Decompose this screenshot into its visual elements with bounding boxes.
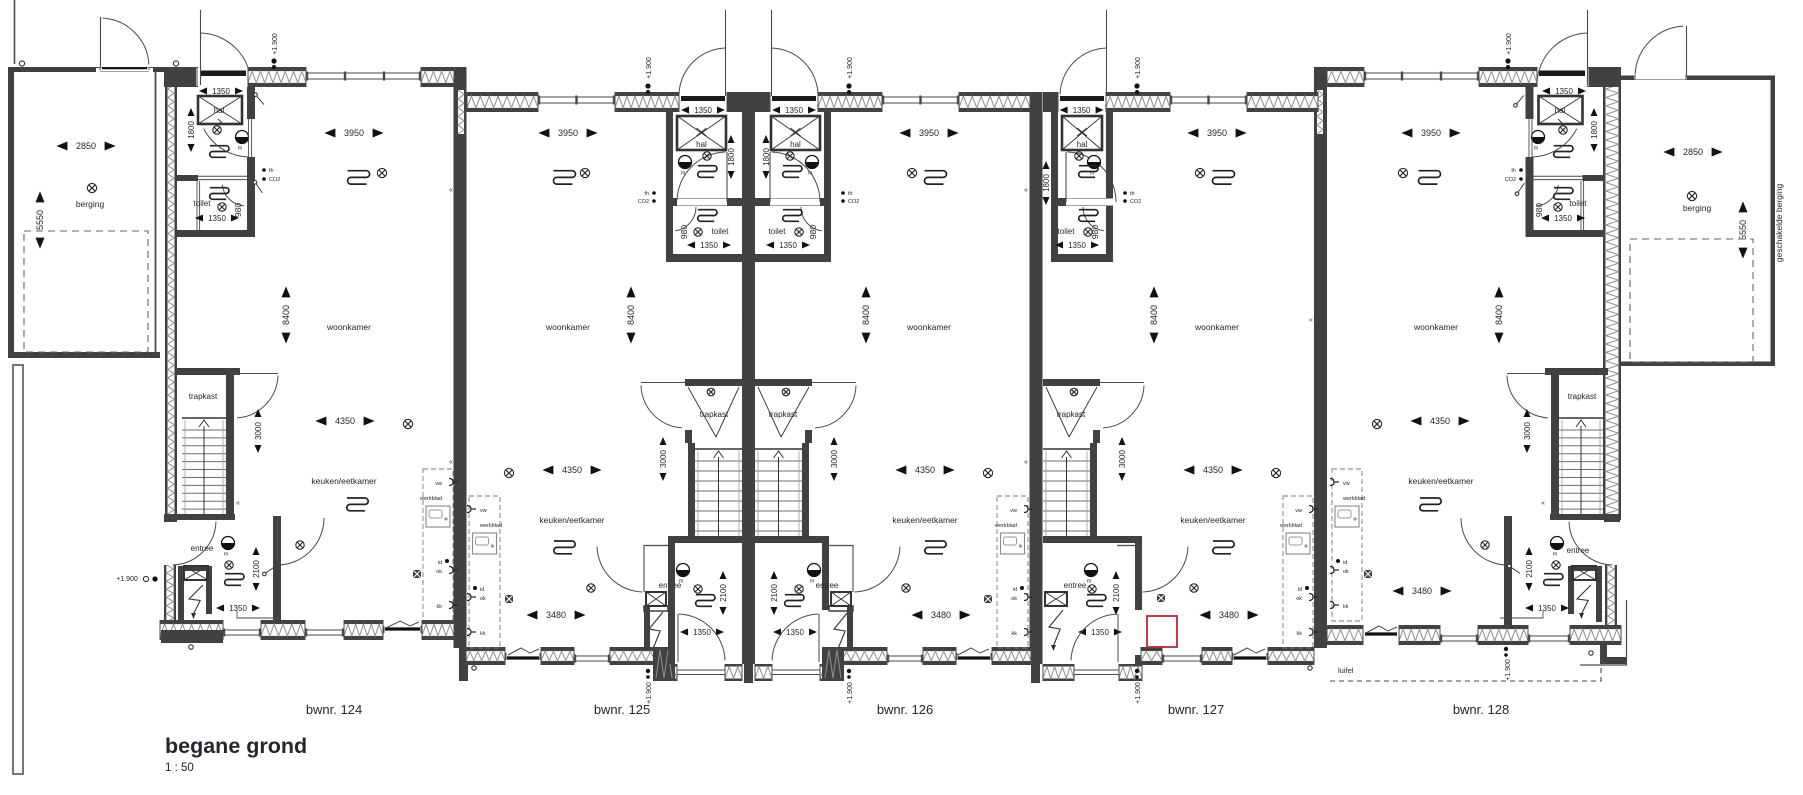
svg-text:toilet: toilet — [769, 227, 787, 236]
svg-text:+1.900: +1.900 — [272, 33, 279, 55]
svg-text:werkblad: werkblad — [419, 496, 442, 502]
svg-text:3000: 3000 — [1523, 422, 1532, 440]
svg-text:4350: 4350 — [915, 465, 935, 475]
svg-text:8400: 8400 — [626, 305, 636, 325]
svg-text:woonkamer: woonkamer — [1413, 322, 1458, 332]
svg-text:«: « — [236, 500, 240, 507]
svg-text:begane grond: begane grond — [165, 734, 307, 758]
svg-text:woonkamer: woonkamer — [1194, 322, 1239, 332]
svg-text:2850: 2850 — [1683, 147, 1703, 157]
svg-text:+1.900: +1.900 — [847, 682, 854, 704]
svg-text:+1.900: +1.900 — [1135, 57, 1142, 79]
svg-text:trapkast: trapkast — [700, 410, 729, 419]
svg-text:m: m — [808, 171, 813, 177]
svg-text:4350: 4350 — [335, 416, 355, 426]
svg-text:«: « — [182, 367, 186, 374]
svg-text:980: 980 — [679, 225, 689, 239]
svg-text:980: 980 — [808, 225, 818, 239]
svg-text:th: th — [1511, 168, 1516, 174]
svg-text:ok: ok — [436, 569, 442, 575]
svg-text:1350: 1350 — [229, 604, 247, 613]
svg-text:vw: vw — [1295, 508, 1302, 514]
svg-text:berging: berging — [76, 199, 105, 209]
svg-text:«: « — [1309, 317, 1313, 324]
svg-text:bwnr. 127: bwnr. 127 — [1168, 702, 1224, 717]
svg-text:3950: 3950 — [344, 128, 364, 138]
svg-text:id: id — [1343, 560, 1347, 566]
svg-text:1350: 1350 — [785, 106, 803, 115]
svg-text:«: « — [1595, 367, 1599, 374]
svg-text:woonkamer: woonkamer — [326, 322, 371, 332]
svg-text:1800: 1800 — [727, 148, 736, 166]
svg-text:ok: ok — [1011, 596, 1017, 602]
svg-text:+1.900: +1.900 — [116, 576, 138, 583]
svg-text:1 : 50: 1 : 50 — [165, 762, 194, 774]
svg-text:id: id — [1298, 587, 1302, 593]
svg-text:th: th — [848, 191, 853, 197]
svg-text:2850: 2850 — [76, 141, 96, 151]
svg-text:keuken/eetkamer: keuken/eetkamer — [892, 515, 957, 525]
svg-text:1800: 1800 — [187, 121, 196, 139]
svg-text:+1.900: +1.900 — [1505, 659, 1512, 681]
svg-text:hal: hal — [214, 106, 225, 115]
svg-text:+1.900: +1.900 — [1506, 33, 1513, 55]
svg-text:werkblad: werkblad — [479, 523, 502, 529]
svg-text:trapkast: trapkast — [1057, 410, 1086, 419]
svg-text:1800: 1800 — [762, 148, 771, 166]
svg-text:8400: 8400 — [861, 305, 871, 325]
svg-text:1350: 1350 — [208, 214, 226, 223]
svg-text:3480: 3480 — [931, 610, 951, 620]
svg-text:1350: 1350 — [1538, 604, 1556, 613]
svg-text:«: « — [1024, 459, 1028, 466]
svg-text:ok: ok — [1343, 569, 1349, 575]
svg-text:vw: vw — [1010, 508, 1017, 514]
svg-text:m: m — [238, 146, 243, 152]
svg-text:3480: 3480 — [1412, 586, 1432, 596]
svg-text:bwnr. 126: bwnr. 126 — [877, 702, 933, 717]
svg-text:toilet: toilet — [1058, 227, 1076, 236]
svg-text:3000: 3000 — [1118, 450, 1127, 468]
svg-text:3000: 3000 — [254, 422, 263, 440]
svg-text:+1.900: +1.900 — [847, 57, 854, 79]
svg-text:ok: ok — [480, 596, 486, 602]
svg-text:id: id — [438, 560, 442, 566]
svg-text:1350: 1350 — [1073, 106, 1091, 115]
svg-text:«: « — [449, 187, 453, 194]
svg-text:3000: 3000 — [830, 450, 839, 468]
svg-text:3950: 3950 — [558, 128, 578, 138]
svg-text:5550: 5550 — [35, 210, 45, 230]
svg-text:1350: 1350 — [212, 87, 230, 96]
svg-text:kk: kk — [1343, 604, 1349, 610]
svg-text:bwnr. 125: bwnr. 125 — [594, 702, 650, 717]
svg-text:keuken/eetkamer: keuken/eetkamer — [311, 476, 376, 486]
svg-text:entree: entree — [191, 544, 214, 553]
svg-text:«: « — [449, 459, 453, 466]
svg-text:bwnr. 124: bwnr. 124 — [306, 702, 362, 717]
svg-text:980: 980 — [233, 203, 243, 217]
svg-text:1350: 1350 — [700, 241, 718, 250]
svg-text:m: m — [681, 171, 686, 177]
svg-text:CO2: CO2 — [638, 199, 649, 205]
svg-text:toilet: toilet — [194, 199, 212, 208]
svg-text:werkblad: werkblad — [994, 523, 1017, 529]
svg-text:werkblad: werkblad — [1342, 496, 1365, 502]
svg-text:CO2: CO2 — [269, 177, 280, 183]
svg-text:kk: kk — [437, 604, 443, 610]
svg-text:3480: 3480 — [1219, 610, 1239, 620]
svg-text:hal: hal — [790, 140, 801, 149]
svg-text:«: « — [1024, 187, 1028, 194]
svg-text:kk: kk — [1297, 631, 1303, 637]
svg-text:toilet: toilet — [1570, 199, 1588, 208]
svg-text:luifel: luifel — [1338, 666, 1354, 675]
svg-text:keuken/eetkamer: keuken/eetkamer — [1408, 476, 1473, 486]
svg-text:«: « — [743, 317, 747, 324]
svg-text:id: id — [1013, 587, 1017, 593]
svg-text:vw: vw — [435, 481, 442, 487]
svg-text:toilet: toilet — [712, 227, 730, 236]
svg-text:+1.900: +1.900 — [1135, 682, 1142, 704]
svg-text:980: 980 — [1090, 225, 1100, 239]
svg-text:trapkast: trapkast — [769, 410, 798, 419]
svg-text:4350: 4350 — [1430, 416, 1450, 426]
svg-text:3950: 3950 — [919, 128, 939, 138]
svg-text:1800: 1800 — [1042, 174, 1051, 192]
svg-text:woonkamer: woonkamer — [906, 322, 951, 332]
svg-text:hal: hal — [696, 140, 707, 149]
svg-text:m: m — [1534, 146, 1539, 152]
svg-text:3950: 3950 — [1207, 128, 1227, 138]
svg-text:8400: 8400 — [281, 305, 291, 325]
svg-text:CO2: CO2 — [1130, 199, 1141, 205]
svg-text:4350: 4350 — [562, 465, 582, 475]
svg-text:trapkast: trapkast — [1568, 392, 1597, 401]
svg-text:1350: 1350 — [786, 628, 804, 637]
svg-text:entree: entree — [1064, 581, 1087, 590]
svg-text:hal: hal — [1077, 140, 1088, 149]
svg-text:vw: vw — [1343, 481, 1350, 487]
svg-text:+1.900: +1.900 — [646, 682, 653, 704]
svg-text:m: m — [224, 552, 229, 558]
svg-text:«: « — [1541, 500, 1545, 507]
svg-text:3480: 3480 — [546, 610, 566, 620]
svg-text:1350: 1350 — [779, 241, 797, 250]
svg-text:kk: kk — [1012, 631, 1018, 637]
svg-text:keuken/eetkamer: keuken/eetkamer — [539, 515, 604, 525]
svg-text:vw: vw — [480, 508, 487, 514]
svg-text:berging: berging — [1683, 203, 1712, 213]
svg-text:CO2: CO2 — [848, 199, 859, 205]
svg-text:1800: 1800 — [1590, 121, 1599, 139]
svg-text:woonkamer: woonkamer — [545, 322, 590, 332]
svg-text:m: m — [679, 579, 684, 585]
svg-text:4350: 4350 — [1203, 465, 1223, 475]
svg-text:3000: 3000 — [659, 450, 668, 468]
svg-text:id: id — [480, 587, 484, 593]
svg-text:hal: hal — [1555, 106, 1566, 115]
svg-text:980: 980 — [1534, 203, 1544, 217]
svg-text:m: m — [1087, 579, 1092, 585]
svg-text:1350: 1350 — [1068, 241, 1086, 250]
svg-text:th: th — [644, 191, 649, 197]
svg-text:keuken/eetkamer: keuken/eetkamer — [1180, 515, 1245, 525]
svg-text:1350: 1350 — [1555, 87, 1573, 96]
svg-text:1350: 1350 — [1091, 628, 1109, 637]
svg-text:kk: kk — [480, 631, 486, 637]
svg-text:CO2: CO2 — [1505, 177, 1516, 183]
svg-text:1350: 1350 — [693, 628, 711, 637]
svg-text:trapkast: trapkast — [189, 392, 218, 401]
svg-text:m: m — [1553, 552, 1558, 558]
svg-text:1350: 1350 — [1554, 214, 1572, 223]
svg-text:entree: entree — [816, 581, 839, 590]
svg-text:8400: 8400 — [1149, 305, 1159, 325]
svg-text:m: m — [810, 579, 815, 585]
svg-text:8400: 8400 — [1494, 305, 1504, 325]
svg-text:entree: entree — [1567, 546, 1590, 555]
svg-text:ok: ok — [1296, 596, 1302, 602]
svg-text:2100: 2100 — [252, 560, 261, 578]
svg-text:2100: 2100 — [1525, 560, 1534, 578]
svg-text:5550: 5550 — [1738, 220, 1748, 240]
svg-text:+1.900: +1.900 — [646, 57, 653, 79]
svg-text:werkblad: werkblad — [1279, 523, 1302, 529]
svg-text:geschakelde berging: geschakelde berging — [1774, 184, 1784, 263]
svg-text:2100: 2100 — [1112, 584, 1121, 602]
svg-text:2100: 2100 — [770, 584, 779, 602]
svg-text:2100: 2100 — [719, 584, 728, 602]
svg-text:th: th — [1130, 191, 1135, 197]
svg-text:1350: 1350 — [694, 106, 712, 115]
svg-text:3950: 3950 — [1421, 128, 1441, 138]
svg-text:th: th — [269, 168, 274, 174]
svg-text:bwnr. 128: bwnr. 128 — [1453, 702, 1509, 717]
